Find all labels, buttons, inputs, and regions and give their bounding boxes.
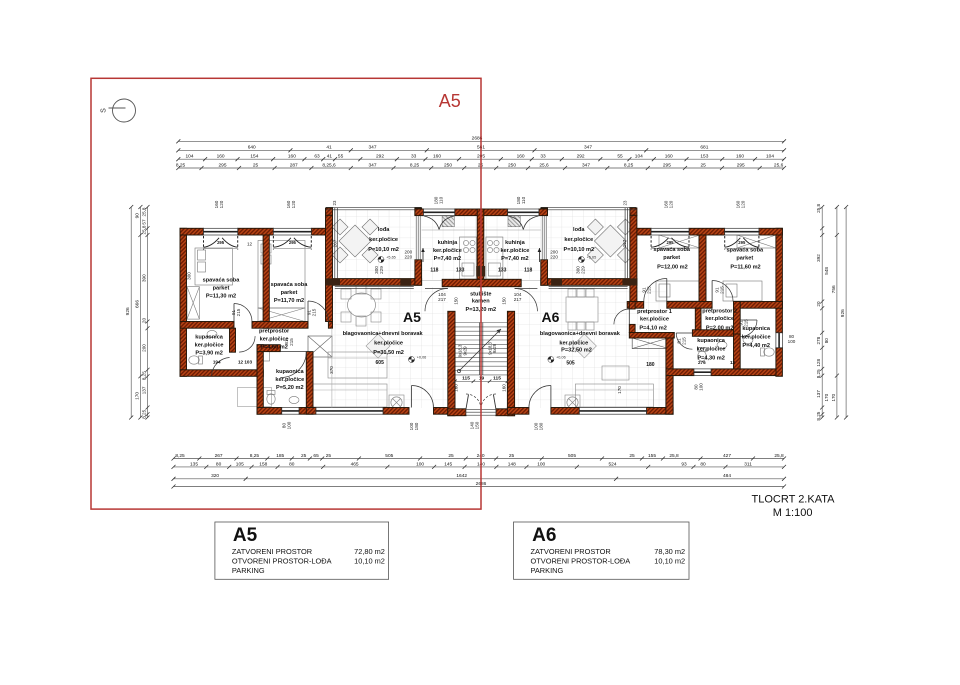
svg-text:160: 160 <box>217 154 225 160</box>
svg-text:12: 12 <box>247 242 253 247</box>
svg-text:8,25: 8,25 <box>816 411 821 420</box>
svg-text:115: 115 <box>493 376 501 382</box>
svg-text:180: 180 <box>539 422 544 430</box>
svg-text:100: 100 <box>788 339 796 344</box>
svg-text:160: 160 <box>665 154 673 160</box>
svg-text:OTVORENI PROSTOR-LOĐA: OTVORENI PROSTOR-LOĐA <box>531 556 631 565</box>
svg-text:160: 160 <box>736 154 744 160</box>
svg-text:110: 110 <box>439 196 444 204</box>
svg-text:267: 267 <box>333 239 338 247</box>
svg-text:250: 250 <box>444 162 452 168</box>
svg-text:160: 160 <box>433 154 441 160</box>
svg-text:104: 104 <box>185 154 193 160</box>
svg-text:25,6: 25,6 <box>774 162 784 168</box>
svg-text:25: 25 <box>301 453 307 459</box>
svg-text:A5: A5 <box>233 525 258 546</box>
svg-text:93: 93 <box>681 461 687 467</box>
svg-text:90: 90 <box>134 213 140 219</box>
svg-text:P=5,20 m2: P=5,20 m2 <box>276 385 304 391</box>
svg-text:370: 370 <box>329 366 334 374</box>
svg-text:505: 505 <box>566 361 575 367</box>
svg-text:blagovaonica+dnevni boravak: blagovaonica+dnevni boravak <box>343 331 424 337</box>
svg-text:23: 23 <box>622 200 627 205</box>
svg-text:150: 150 <box>475 421 480 429</box>
svg-text:lođa: lođa <box>378 227 390 233</box>
svg-text:ker.pločice: ker.pločice <box>742 335 771 341</box>
svg-text:160: 160 <box>517 154 525 160</box>
svg-text:12: 12 <box>730 360 736 365</box>
svg-text:155: 155 <box>648 453 656 459</box>
svg-text:133: 133 <box>456 268 465 274</box>
svg-text:8,25: 8,25 <box>816 369 821 378</box>
svg-text:P=32,50 m2: P=32,50 m2 <box>561 348 592 354</box>
svg-text:25: 25 <box>629 453 635 459</box>
svg-text:+5,65: +5,65 <box>386 256 396 260</box>
svg-text:347: 347 <box>368 145 376 151</box>
svg-text:390: 390 <box>142 274 147 282</box>
svg-text:160: 160 <box>501 384 506 392</box>
svg-text:8,25: 8,25 <box>624 162 634 168</box>
svg-text:215: 215 <box>682 337 687 345</box>
svg-text:P=11,70 m2: P=11,70 m2 <box>274 298 304 304</box>
svg-text:100: 100 <box>537 461 545 467</box>
svg-text:756: 756 <box>831 285 837 293</box>
svg-text:41: 41 <box>327 154 333 160</box>
svg-text:25,8: 25,8 <box>142 207 147 216</box>
svg-text:170: 170 <box>824 393 829 401</box>
svg-text:215: 215 <box>720 286 725 294</box>
svg-text:8,25: 8,25 <box>250 453 260 459</box>
svg-text:kuhinja: kuhinja <box>438 240 458 246</box>
svg-text:295: 295 <box>289 240 297 245</box>
svg-text:180: 180 <box>646 362 655 368</box>
svg-text:311: 311 <box>744 461 752 467</box>
svg-text:P=12,00 m2: P=12,00 m2 <box>657 265 688 271</box>
svg-text:267: 267 <box>215 453 223 459</box>
svg-text:A6: A6 <box>542 309 560 325</box>
svg-text:ker.pločice: ker.pločice <box>275 377 304 383</box>
svg-text:pretprostor 1: pretprostor 1 <box>637 309 672 315</box>
svg-text:pretprostor: pretprostor <box>259 329 290 335</box>
svg-text:55: 55 <box>617 154 623 160</box>
svg-text:P=2,00 m2: P=2,00 m2 <box>706 326 734 332</box>
svg-text:229: 229 <box>379 266 384 274</box>
svg-text:78,30 m2: 78,30 m2 <box>654 547 685 556</box>
svg-text:548: 548 <box>824 267 829 275</box>
svg-text:287: 287 <box>290 162 298 168</box>
svg-text:33: 33 <box>411 154 417 160</box>
svg-text:217: 217 <box>438 297 446 302</box>
svg-text:80: 80 <box>216 461 222 467</box>
svg-text:+0,06: +0,06 <box>556 356 566 360</box>
svg-text:ker.pločice: ker.pločice <box>640 317 669 323</box>
svg-text:P=3,90 m2: P=3,90 m2 <box>195 351 223 357</box>
svg-text:80: 80 <box>289 461 295 467</box>
svg-text:276: 276 <box>698 360 706 365</box>
svg-text:spavaća soba: spavaća soba <box>271 282 309 288</box>
svg-text:158: 158 <box>259 461 267 467</box>
svg-text:ker.pločice: ker.pločice <box>705 316 734 322</box>
svg-text:ZATVORENI PROSTOR: ZATVORENI PROSTOR <box>531 547 611 556</box>
svg-text:A5: A5 <box>403 309 421 325</box>
svg-text:215: 215 <box>744 319 749 327</box>
svg-text:120: 120 <box>219 200 224 208</box>
svg-text:80: 80 <box>824 338 829 344</box>
svg-text:parket: parket <box>663 255 680 261</box>
svg-text:9x29: 9x29 <box>462 346 467 356</box>
svg-text:505: 505 <box>385 453 393 459</box>
svg-text:65: 65 <box>313 453 319 459</box>
svg-text:105: 105 <box>236 461 244 467</box>
svg-text:295: 295 <box>218 162 226 168</box>
svg-text:160: 160 <box>453 384 458 392</box>
svg-text:ker.pločice: ker.pločice <box>369 237 398 243</box>
svg-text:kupaonica: kupaonica <box>195 335 224 341</box>
svg-text:parket: parket <box>213 286 230 292</box>
svg-text:ker.pločice: ker.pločice <box>374 341 403 347</box>
svg-text:+5,65: +5,65 <box>587 256 597 260</box>
svg-text:120: 120 <box>291 200 296 208</box>
svg-text:25,8: 25,8 <box>669 453 679 459</box>
svg-text:605: 605 <box>376 360 385 366</box>
svg-text:100: 100 <box>699 383 704 391</box>
svg-text:ker.pločice: ker.pločice <box>564 237 593 243</box>
svg-text:295: 295 <box>737 162 745 168</box>
svg-text:kupaonica: kupaonica <box>276 369 305 375</box>
svg-text:926: 926 <box>125 307 131 315</box>
svg-text:145: 145 <box>444 461 452 467</box>
svg-text:267: 267 <box>622 239 627 247</box>
svg-text:292: 292 <box>577 154 585 160</box>
svg-text:8,25: 8,25 <box>142 371 147 380</box>
svg-text:215: 215 <box>236 308 241 316</box>
svg-text:spavaća soba: spavaća soba <box>203 278 241 284</box>
svg-text:pretprostor 2: pretprostor 2 <box>702 309 737 315</box>
svg-text:PARKING: PARKING <box>531 566 564 575</box>
svg-text:220: 220 <box>550 255 558 260</box>
svg-text:P=31,50 m2: P=31,50 m2 <box>373 350 404 356</box>
svg-text:137: 137 <box>816 390 821 398</box>
svg-text:OTVORENI PROSTOR-LOĐA: OTVORENI PROSTOR-LOĐA <box>232 556 332 565</box>
svg-text:300: 300 <box>187 272 192 280</box>
svg-text:320: 320 <box>211 473 219 479</box>
svg-text:347: 347 <box>584 145 592 151</box>
svg-text:8,25: 8,25 <box>175 453 185 459</box>
svg-text:133: 133 <box>498 268 507 274</box>
svg-text:666: 666 <box>134 300 140 308</box>
svg-text:150: 150 <box>501 297 506 305</box>
svg-text:137: 137 <box>142 386 147 394</box>
svg-text:25,8: 25,8 <box>816 203 821 212</box>
svg-text:8,25: 8,25 <box>176 162 186 168</box>
svg-text:20: 20 <box>142 318 147 324</box>
svg-text:25: 25 <box>253 162 259 168</box>
svg-text:12 103: 12 103 <box>238 360 252 365</box>
svg-text:180: 180 <box>414 422 419 430</box>
svg-text:P=11,60 m2: P=11,60 m2 <box>730 265 760 271</box>
svg-text:P=4,40 m2: P=4,40 m2 <box>742 343 770 349</box>
svg-text:120: 120 <box>740 200 745 208</box>
svg-text:185: 185 <box>276 453 284 459</box>
svg-text:681: 681 <box>700 145 708 151</box>
svg-text:120: 120 <box>669 200 674 208</box>
svg-text:148: 148 <box>508 461 516 467</box>
svg-text:spavaća soba: spavaća soba <box>726 248 764 254</box>
svg-text:ker.pločice: ker.pločice <box>433 248 462 254</box>
svg-text:217: 217 <box>514 297 522 302</box>
svg-text:ker.pločice: ker.pločice <box>195 343 224 349</box>
svg-text:128: 128 <box>816 359 821 367</box>
svg-text:spavaća soba: spavaća soba <box>653 247 691 253</box>
svg-text:170: 170 <box>831 393 836 401</box>
svg-text:153: 153 <box>700 154 708 160</box>
svg-text:170: 170 <box>134 392 140 400</box>
svg-text:parket: parket <box>736 256 753 262</box>
svg-text:465: 465 <box>351 461 359 467</box>
svg-text:P=4,10 m2: P=4,10 m2 <box>639 326 667 332</box>
svg-text:P=7,40 m2: P=7,40 m2 <box>501 256 529 262</box>
svg-text:blagovaonica+dnevni boravak: blagovaonica+dnevni boravak <box>540 331 621 337</box>
svg-text:640: 640 <box>248 145 256 151</box>
svg-text:PARKING: PARKING <box>232 566 265 575</box>
svg-text:parket: parket <box>281 290 298 296</box>
svg-text:8,25: 8,25 <box>142 409 147 418</box>
svg-text:ker.pločice: ker.pločice <box>500 248 529 254</box>
svg-text:104: 104 <box>635 154 643 160</box>
svg-text:115: 115 <box>462 376 470 382</box>
svg-text:118: 118 <box>430 268 438 274</box>
svg-text:P=10,10 m2: P=10,10 m2 <box>368 247 399 253</box>
svg-text:33: 33 <box>540 154 546 160</box>
svg-text:25,6: 25,6 <box>539 162 549 168</box>
svg-text:1642: 1642 <box>456 473 467 479</box>
svg-text:154: 154 <box>250 154 258 160</box>
svg-text:25: 25 <box>701 162 707 168</box>
svg-text:P=7,40 m2: P=7,40 m2 <box>434 256 462 262</box>
svg-text:100: 100 <box>287 421 292 429</box>
svg-text:lođa: lođa <box>573 227 585 233</box>
svg-text:295: 295 <box>667 240 675 245</box>
svg-text:P=11,30 m2: P=11,30 m2 <box>206 294 236 300</box>
svg-text:41: 41 <box>326 145 332 151</box>
svg-text:215: 215 <box>289 338 294 346</box>
svg-text:9x29: 9x29 <box>492 343 497 353</box>
svg-text:295: 295 <box>738 240 746 245</box>
svg-text:292: 292 <box>376 154 384 160</box>
svg-text:80: 80 <box>700 461 706 467</box>
svg-text:229: 229 <box>580 266 585 274</box>
svg-text:55: 55 <box>338 154 344 160</box>
svg-text:200: 200 <box>142 344 147 352</box>
svg-text:+0,06: +0,06 <box>417 356 427 360</box>
svg-text:20: 20 <box>816 301 821 307</box>
svg-text:160: 160 <box>288 154 296 160</box>
svg-text:63: 63 <box>314 154 320 160</box>
svg-text:kupaonica: kupaonica <box>697 338 726 344</box>
svg-text:150: 150 <box>454 297 459 305</box>
svg-text:392: 392 <box>816 254 821 262</box>
svg-text:S: S <box>101 108 108 113</box>
svg-text:A5: A5 <box>439 91 461 111</box>
svg-text:118: 118 <box>524 268 532 274</box>
svg-text:100: 100 <box>416 461 424 467</box>
svg-text:505: 505 <box>568 453 576 459</box>
svg-text:ZATVORENI PROSTOR: ZATVORENI PROSTOR <box>232 547 312 556</box>
svg-text:295: 295 <box>663 162 671 168</box>
svg-text:25,8: 25,8 <box>774 453 784 459</box>
svg-text:215: 215 <box>312 308 317 316</box>
svg-text:25: 25 <box>326 453 332 459</box>
svg-text:25: 25 <box>509 453 515 459</box>
svg-text:926: 926 <box>840 309 846 317</box>
svg-text:57: 57 <box>142 219 147 225</box>
svg-text:A6: A6 <box>532 525 556 546</box>
svg-text:194: 194 <box>213 360 221 365</box>
svg-text:TLOCRT 2.KATA: TLOCRT 2.KATA <box>752 494 836 506</box>
svg-text:104: 104 <box>766 154 774 160</box>
svg-text:250: 250 <box>508 162 516 168</box>
svg-text:170: 170 <box>617 386 622 394</box>
svg-text:220: 220 <box>404 255 412 260</box>
svg-text:347: 347 <box>582 162 590 168</box>
svg-text:215: 215 <box>647 286 652 294</box>
svg-text:484: 484 <box>723 473 731 479</box>
svg-text:295: 295 <box>217 240 225 245</box>
svg-text:8,25,6: 8,25,6 <box>322 162 336 168</box>
svg-text:278: 278 <box>816 336 821 344</box>
svg-text:347: 347 <box>368 162 376 168</box>
svg-text:135: 135 <box>190 461 198 467</box>
svg-text:25: 25 <box>448 453 454 459</box>
svg-text:M 1:100: M 1:100 <box>773 507 813 519</box>
svg-text:427: 427 <box>723 453 731 459</box>
svg-text:25,8: 25,8 <box>142 225 147 234</box>
svg-text:10,10 m2: 10,10 m2 <box>354 556 385 565</box>
svg-text:8,25: 8,25 <box>410 162 420 168</box>
svg-text:110: 110 <box>521 196 526 204</box>
svg-text:10,10 m2: 10,10 m2 <box>654 556 685 565</box>
svg-text:P=10,10 m2: P=10,10 m2 <box>563 247 594 253</box>
svg-text:kuhinja: kuhinja <box>505 240 525 246</box>
svg-text:524: 524 <box>608 461 616 467</box>
svg-text:23: 23 <box>332 200 337 205</box>
svg-text:ker.pločice: ker.pločice <box>697 347 726 353</box>
svg-text:72,80 m2: 72,80 m2 <box>354 547 385 556</box>
svg-text:ker.pločice: ker.pločice <box>559 341 588 347</box>
